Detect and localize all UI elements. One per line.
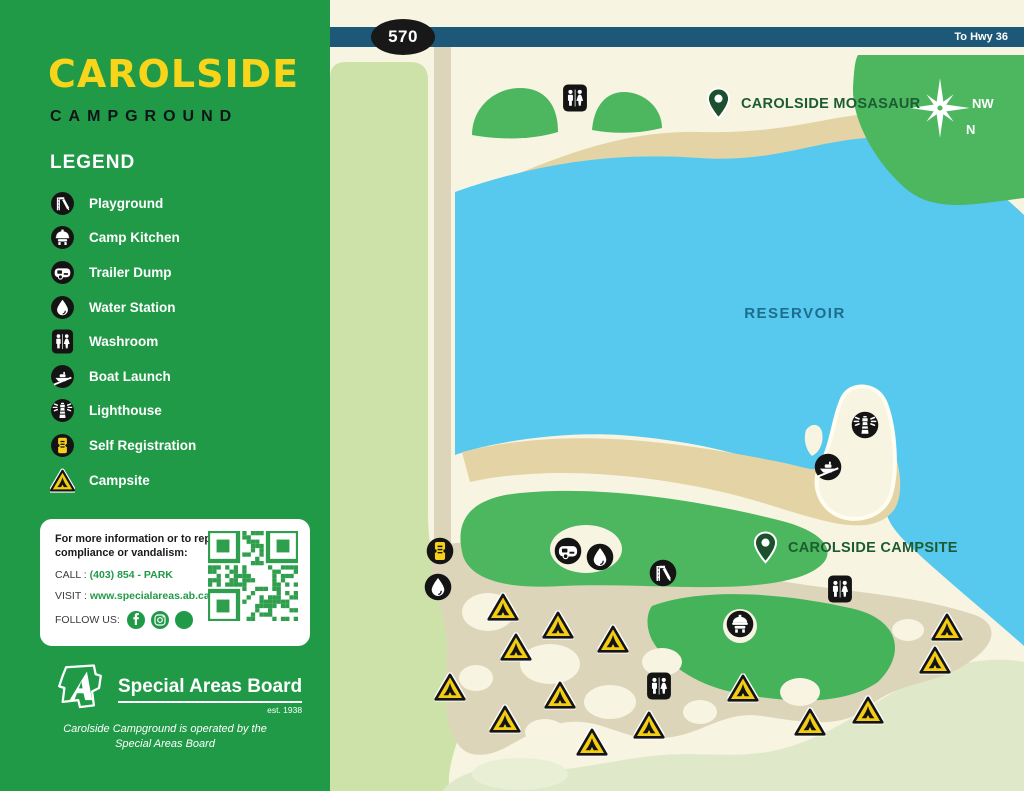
reservoir-label: RESERVOIR	[744, 305, 846, 322]
campsite-marker	[501, 633, 532, 662]
sidebar: CAROLSIDE CAMPGROUND LEGEND Playground C…	[0, 0, 330, 791]
instagram-icon[interactable]	[151, 611, 169, 629]
info-card: For more information or to report non-co…	[40, 519, 310, 646]
legend-list: Playground Camp Kitchen Trailer Dump Wat…	[50, 186, 196, 497]
board-established: est. 1938	[118, 705, 302, 715]
self-registration-icon	[426, 537, 455, 566]
playground-icon	[50, 191, 75, 216]
pin-label: CAROLSIDE CAMPSITE	[788, 540, 958, 556]
campsite-marker	[598, 625, 629, 654]
campsite-icon	[50, 468, 75, 493]
legend-label: Water Station	[89, 300, 176, 315]
legend-item-playground: Playground	[50, 186, 196, 221]
washroom-icon	[50, 329, 75, 354]
legend-title: LEGEND	[50, 152, 135, 174]
lighthouse-icon	[851, 411, 880, 440]
legend-label: Camp Kitchen	[89, 230, 180, 245]
self-registration-icon	[50, 433, 75, 458]
water-icon	[424, 573, 453, 602]
campsite-marker	[435, 673, 466, 702]
social-icon[interactable]	[175, 611, 193, 629]
call-label: CALL :	[55, 569, 87, 581]
qr-code	[208, 531, 298, 621]
campsite-marker	[634, 711, 665, 740]
campsite-marker	[853, 696, 884, 725]
legend-label: Self Registration	[89, 438, 196, 453]
legend-item-trailer-dump: Trailer Dump	[50, 255, 196, 290]
campsite-marker	[577, 728, 608, 757]
boat-launch-icon	[814, 453, 843, 482]
map-pin: CAROLSIDE CAMPSITE	[752, 531, 958, 565]
campground-map: 570 To Hwy 36 RESERVOIR NW N CAROLSIDE M…	[330, 0, 1024, 791]
washroom-icon	[827, 575, 853, 604]
legend-item-boat-launch: Boat Launch	[50, 359, 196, 394]
follow-label: FOLLOW US:	[55, 614, 120, 626]
legend-label: Trailer Dump	[89, 265, 172, 280]
lighthouse-icon	[50, 398, 75, 423]
highway-number: 570	[388, 27, 418, 47]
website-link[interactable]: www.specialareas.ab.ca	[90, 590, 210, 602]
water-station-icon	[50, 295, 75, 320]
legend-item-self-registration: Self Registration	[50, 428, 196, 463]
campsite-marker	[490, 705, 521, 734]
legend-label: Boat Launch	[89, 369, 171, 384]
campsite-marker	[545, 681, 576, 710]
camp-kitchen-icon	[50, 225, 75, 250]
campground-logo: CAROLSIDE	[48, 52, 299, 96]
trailer-dump-icon	[50, 260, 75, 285]
washroom-icon	[646, 672, 672, 701]
compass-rose: NW N	[908, 76, 1018, 146]
boat-launch-icon	[50, 364, 75, 389]
phone-number: (403) 854 - PARK	[90, 569, 173, 581]
legend-item-washroom: Washroom	[50, 324, 196, 359]
legend-item-water-station: Water Station	[50, 290, 196, 325]
campsite-marker	[543, 611, 574, 640]
legend-item-camp-kitchen: Camp Kitchen	[50, 221, 196, 256]
legend-label: Washroom	[89, 334, 158, 349]
water-icon	[586, 543, 615, 572]
visit-label: VISIT :	[55, 590, 87, 602]
highway-destination-label: To Hwy 36	[954, 31, 1008, 43]
camp-kitchen-icon	[726, 610, 755, 639]
legend-item-lighthouse: Lighthouse	[50, 394, 196, 429]
campground-logo-subtitle: CAMPGROUND	[50, 108, 238, 126]
compass-n-label: N	[966, 122, 975, 137]
special-areas-board-logo: Special Areas Board est. 1938	[52, 662, 302, 715]
pin-label: CAROLSIDE MOSASAUR	[741, 96, 920, 112]
campsite-marker	[728, 674, 759, 703]
campsite-marker	[488, 593, 519, 622]
legend-item-campsite: Campsite	[50, 463, 196, 498]
legend-label: Campsite	[89, 473, 150, 488]
facebook-icon[interactable]	[127, 611, 145, 629]
map-pin: CAROLSIDE MOSASAUR	[705, 87, 920, 121]
legend-label: Lighthouse	[89, 403, 162, 418]
trailer-dump-icon	[554, 537, 583, 566]
highway-570-badge: 570	[371, 19, 435, 55]
compass-nw-label: NW	[972, 96, 994, 111]
operator-note: Carolside Campground is operated by the …	[45, 722, 285, 752]
playground-icon	[649, 559, 678, 588]
special-areas-map-icon	[52, 662, 108, 714]
legend-label: Playground	[89, 196, 163, 211]
washroom-icon	[562, 84, 588, 113]
campsite-marker	[920, 646, 951, 675]
campsite-marker	[932, 613, 963, 642]
campsite-marker	[795, 708, 826, 737]
board-name: Special Areas Board	[118, 676, 302, 703]
